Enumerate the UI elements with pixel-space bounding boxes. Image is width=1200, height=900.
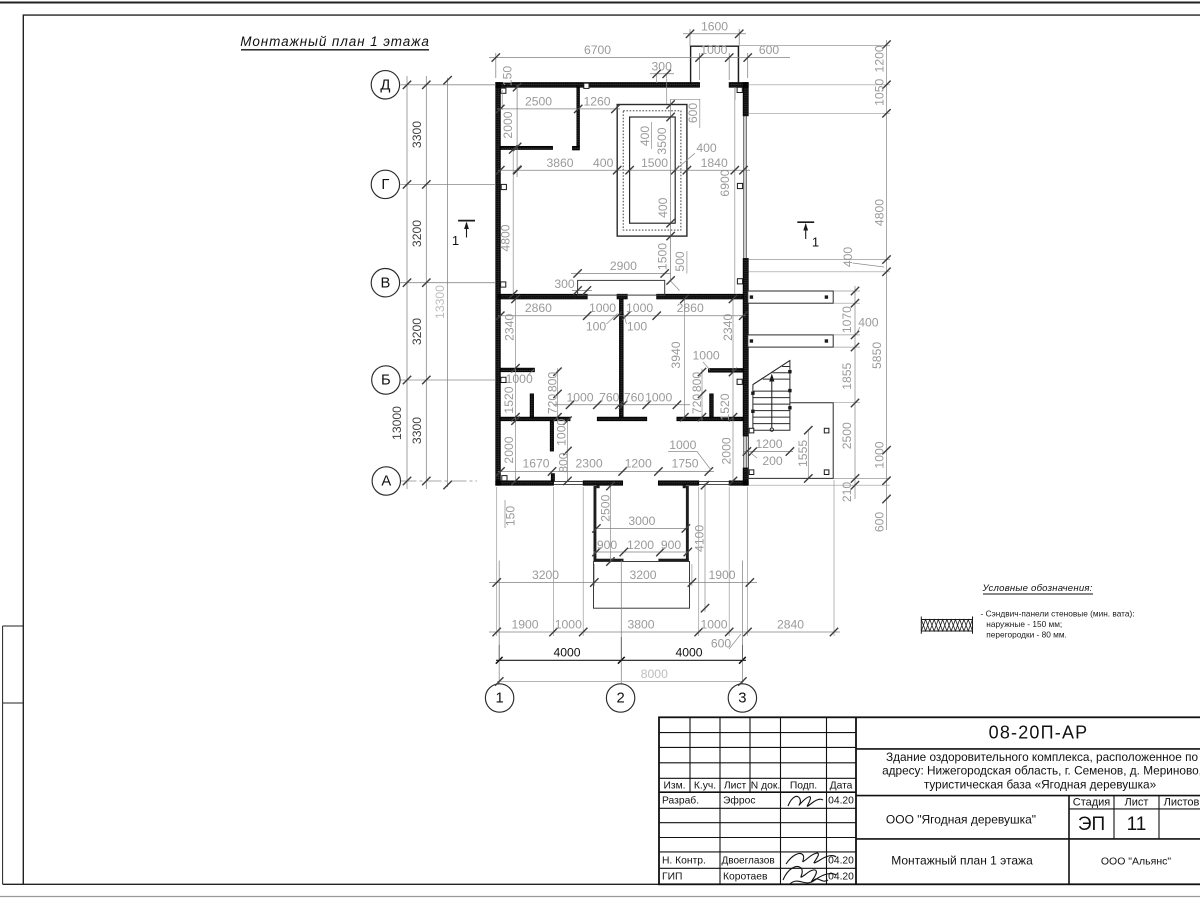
svg-text:Здание оздоровительного компле: Здание оздоровительного комплекса, распо… [886, 750, 1198, 764]
svg-text:Лист: Лист [1125, 797, 1149, 809]
svg-text:3800: 3800 [627, 618, 654, 632]
svg-text:адресу: Нижегородская область,: адресу: Нижегородская область, г. Семено… [882, 763, 1200, 777]
svg-text:1520: 1520 [718, 393, 732, 420]
svg-text:Д: Д [380, 78, 390, 94]
svg-text:1750: 1750 [671, 457, 698, 471]
svg-text:2340: 2340 [503, 314, 517, 341]
svg-text:600: 600 [711, 637, 732, 651]
svg-text:1500: 1500 [656, 243, 670, 270]
svg-text:2500: 2500 [598, 494, 612, 521]
svg-text:ЭП: ЭП [1078, 814, 1105, 835]
svg-text:3000: 3000 [628, 514, 655, 528]
svg-text:Н. Контр.: Н. Контр. [662, 855, 706, 866]
svg-text:Листов: Листов [1164, 797, 1200, 809]
svg-text:1: 1 [812, 234, 819, 249]
svg-text:5850: 5850 [870, 342, 884, 369]
svg-text:1000: 1000 [589, 301, 616, 315]
svg-text:1600: 1600 [701, 20, 728, 34]
svg-text:1000: 1000 [873, 441, 887, 468]
svg-text:- Сэндвич-панели стеновые (мин: - Сэндвич-панели стеновые (мин. вата): [981, 609, 1135, 619]
svg-text:4800: 4800 [499, 224, 513, 251]
svg-text:Дата: Дата [830, 781, 853, 792]
svg-text:Б: Б [381, 373, 391, 389]
svg-text:900: 900 [661, 538, 682, 552]
svg-text:150: 150 [504, 506, 518, 527]
svg-text:1000: 1000 [693, 349, 720, 363]
svg-text:800: 800 [690, 372, 704, 393]
svg-text:400: 400 [593, 156, 614, 170]
svg-text:1000: 1000 [566, 391, 593, 405]
svg-text:3200: 3200 [532, 568, 559, 582]
svg-text:1855: 1855 [840, 362, 854, 389]
svg-text:туристическая база «Ягодная де: туристическая база «Ягодная деревушка» [924, 777, 1157, 791]
svg-text:1900: 1900 [511, 618, 538, 632]
svg-text:4000: 4000 [675, 646, 702, 660]
svg-text:2000: 2000 [501, 111, 515, 138]
svg-text:04.20: 04.20 [828, 855, 854, 866]
svg-text:перегородки - 80 мм.: перегородки - 80 мм. [986, 629, 1067, 639]
svg-text:04.20: 04.20 [828, 796, 854, 807]
svg-text:200: 200 [762, 454, 783, 468]
svg-text:1: 1 [452, 233, 459, 248]
svg-text:наружные - 150 мм;: наружные - 150 мм; [986, 619, 1062, 629]
svg-text:600: 600 [873, 512, 887, 533]
svg-text:13000: 13000 [390, 406, 404, 440]
svg-text:Изм.: Изм. [663, 781, 685, 792]
svg-text:3300: 3300 [410, 121, 424, 148]
svg-text:Лист: Лист [724, 781, 747, 792]
svg-text:Эфрос: Эфрос [723, 795, 755, 807]
svg-text:2300: 2300 [576, 457, 603, 471]
svg-text:ООО "Альянс": ООО "Альянс" [1101, 855, 1171, 867]
svg-text:Двоеглазов: Двоеглазов [722, 855, 775, 866]
svg-text:1670: 1670 [522, 457, 549, 471]
svg-text:2000: 2000 [502, 436, 516, 463]
svg-text:1: 1 [495, 691, 503, 707]
svg-text:1520: 1520 [502, 386, 516, 413]
svg-text:800: 800 [546, 372, 560, 393]
svg-text:760: 760 [624, 391, 645, 405]
svg-text:1200: 1200 [755, 437, 782, 451]
svg-text:6900: 6900 [718, 169, 732, 196]
svg-text:100: 100 [627, 320, 648, 334]
svg-text:500: 500 [673, 251, 687, 272]
svg-text:А: А [381, 474, 391, 490]
svg-text:К.уч.: К.уч. [694, 781, 716, 792]
svg-text:400: 400 [656, 197, 670, 218]
svg-text:8000: 8000 [641, 667, 668, 681]
svg-text:1840: 1840 [701, 156, 728, 170]
svg-text:3200: 3200 [410, 318, 424, 345]
svg-text:300: 300 [554, 277, 575, 291]
svg-text:1260: 1260 [583, 95, 610, 109]
svg-text:400: 400 [841, 247, 855, 268]
svg-text:1000: 1000 [700, 43, 727, 57]
svg-text:3200: 3200 [410, 220, 424, 247]
svg-text:4000: 4000 [553, 646, 580, 660]
svg-text:4100: 4100 [693, 525, 707, 552]
svg-text:1000: 1000 [555, 419, 569, 446]
svg-text:Разраб.: Разраб. [662, 795, 699, 807]
svg-text:400: 400 [638, 126, 652, 147]
svg-text:1500: 1500 [641, 156, 668, 170]
svg-text:11: 11 [1127, 814, 1147, 835]
svg-text:Монтажный план 1 этажа: Монтажный план 1 этажа [891, 854, 1033, 868]
svg-text:210: 210 [840, 482, 854, 503]
svg-text:2500: 2500 [840, 422, 854, 449]
svg-text:3200: 3200 [629, 568, 656, 582]
svg-text:4800: 4800 [873, 199, 887, 226]
svg-text:100: 100 [586, 320, 607, 334]
svg-text:1000: 1000 [700, 618, 727, 632]
svg-text:1050: 1050 [873, 79, 887, 106]
svg-text:900: 900 [597, 538, 618, 552]
svg-text:800: 800 [556, 452, 570, 473]
svg-text:В: В [380, 275, 390, 291]
svg-text:3500: 3500 [655, 127, 669, 154]
svg-text:Коротаев: Коротаев [723, 872, 768, 883]
svg-text:Стадия: Стадия [1073, 797, 1111, 809]
svg-text:1070: 1070 [840, 306, 854, 333]
svg-text:400: 400 [858, 316, 879, 330]
svg-text:720: 720 [546, 394, 560, 415]
svg-text:3860: 3860 [546, 156, 573, 170]
svg-text:300: 300 [652, 60, 673, 74]
svg-text:2860: 2860 [525, 301, 552, 315]
svg-text:13300: 13300 [433, 285, 447, 319]
svg-text:150: 150 [501, 66, 515, 87]
svg-text:1555: 1555 [796, 440, 810, 467]
svg-text:ООО "Ягодная деревушка": ООО "Ягодная деревушка" [886, 813, 1036, 827]
svg-text:Условные обозначения:: Условные обозначения: [981, 583, 1092, 594]
svg-text:600: 600 [686, 103, 700, 124]
svg-text:2900: 2900 [610, 259, 637, 273]
svg-text:3940: 3940 [669, 341, 683, 368]
svg-text:2: 2 [616, 691, 624, 707]
svg-text:N док.: N док. [751, 781, 780, 792]
svg-text:2500: 2500 [525, 95, 552, 109]
svg-text:400: 400 [696, 141, 717, 155]
svg-text:1200: 1200 [873, 45, 887, 72]
svg-text:2340: 2340 [721, 314, 735, 341]
svg-text:3: 3 [738, 691, 746, 707]
svg-text:ГИП: ГИП [662, 872, 682, 883]
svg-text:1000: 1000 [626, 301, 653, 315]
svg-text:Подп.: Подп. [790, 781, 817, 792]
svg-text:2840: 2840 [777, 618, 804, 632]
svg-text:760: 760 [599, 391, 620, 405]
svg-text:2000: 2000 [719, 437, 733, 464]
svg-text:1200: 1200 [627, 538, 654, 552]
svg-text:Монтажный план 1 этажа: Монтажный план 1 этажа [240, 34, 430, 49]
svg-text:720: 720 [690, 394, 704, 415]
svg-text:08-20П-АР: 08-20П-АР [989, 722, 1089, 742]
svg-text:1000: 1000 [669, 438, 696, 452]
svg-text:1900: 1900 [708, 568, 735, 582]
svg-text:1200: 1200 [625, 457, 652, 471]
svg-text:6700: 6700 [584, 43, 611, 57]
svg-text:Г: Г [381, 177, 389, 193]
svg-text:1000: 1000 [555, 618, 582, 632]
svg-text:3300: 3300 [410, 417, 424, 444]
svg-text:1000: 1000 [645, 391, 672, 405]
